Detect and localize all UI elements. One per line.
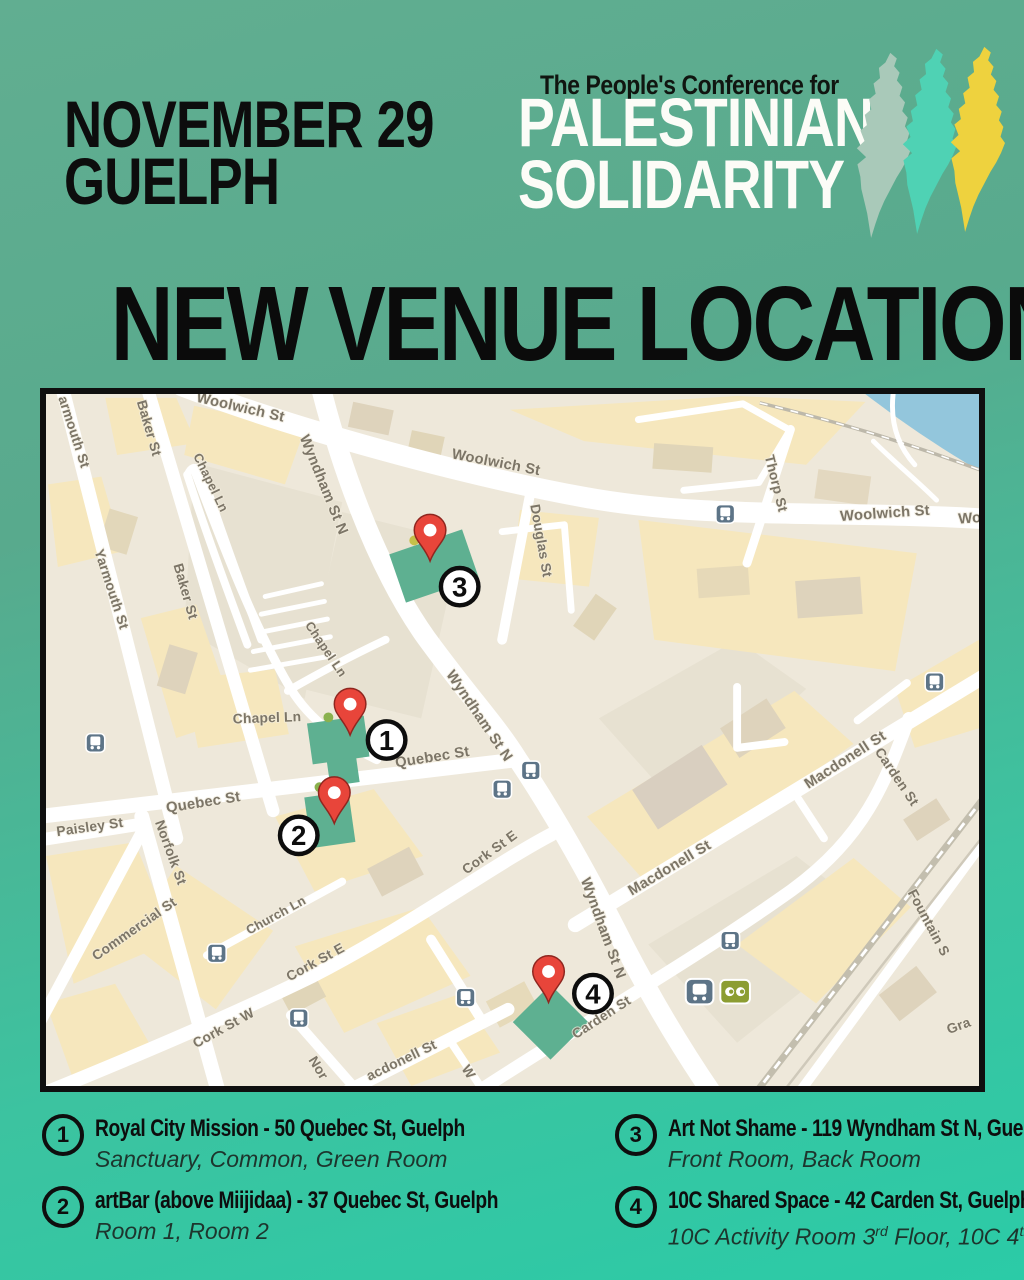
venue-highlight-1	[307, 716, 369, 765]
map-pin-badge-1: 1	[368, 721, 406, 758]
venue-item-2: 2 artBar (above Miijidaa) - 37 Quebec St…	[42, 1186, 599, 1252]
venue-rooms: 10C Activity Room 3rd Floor, 10C 4th Flo…	[668, 1217, 1024, 1252]
palestine-map-shapes-icon	[850, 46, 1020, 242]
bus-stop-icon	[925, 673, 944, 692]
venue-number-badge: 3	[615, 1114, 657, 1156]
palestine-shape-yellow	[943, 46, 1013, 235]
venue-item-1: 1 Royal City Mission - 50 Quebec St, Gue…	[42, 1114, 599, 1174]
bus-stop-icon	[207, 944, 226, 963]
venue-item-3: 3 Art Not Shame - 119 Wyndham St N, Guel…	[615, 1114, 1024, 1174]
bus-stop-icon	[493, 780, 512, 799]
svg-text:3: 3	[452, 572, 467, 603]
street-label: Wo	[958, 510, 979, 528]
bus-stop-icon	[521, 761, 540, 780]
venue-rooms: Room 1, Room 2	[95, 1217, 599, 1246]
venue-number-badge: 1	[42, 1114, 84, 1156]
svg-text:2: 2	[291, 820, 306, 851]
venue-title: Art Not Shame - 119 Wyndham St N, Guelph	[668, 1114, 1024, 1144]
venue-number-badge: 4	[615, 1186, 657, 1228]
map-pin-badge-2: 2	[280, 817, 318, 854]
venue-map: Woolwich StWoolwich StWoolwich StWoWyndh…	[40, 388, 985, 1092]
svg-text:1: 1	[379, 725, 394, 756]
svg-text:4: 4	[585, 978, 601, 1009]
venue-rooms: Front Room, Back Room	[668, 1145, 1024, 1174]
map-pin-badge-4: 4	[574, 975, 612, 1012]
headline: NEW VENUE LOCATIONS	[0, 264, 1024, 385]
bus-stop-icon	[86, 734, 105, 753]
bus-stop-icon	[289, 1009, 308, 1028]
venue-item-4: 4 10C Shared Space - 42 Carden St, Guelp…	[615, 1186, 1024, 1252]
venue-legend: 1 Royal City Mission - 50 Quebec St, Gue…	[42, 1114, 1000, 1252]
event-poster: NOVEMBER 29 GUELPH The People's Conferen…	[0, 0, 1024, 1280]
bus-stop-icon	[721, 931, 740, 950]
go-stop-icon	[720, 980, 750, 1004]
venue-rooms: Sanctuary, Common, Green Room	[95, 1145, 557, 1174]
venue-title: Royal City Mission - 50 Quebec St, Guelp…	[95, 1114, 465, 1144]
venue-title: 10C Shared Space - 42 Carden St, Guelph	[668, 1186, 1024, 1216]
bus-stop-icon	[716, 505, 735, 524]
venue-number-badge: 2	[42, 1186, 84, 1228]
venue-title: artBar (above Miijidaa) - 37 Quebec St, …	[95, 1186, 498, 1216]
poi-dot	[323, 712, 333, 722]
train-stop-icon	[686, 979, 714, 1005]
logo-title: PALESTINIAN SOLIDARITY	[518, 92, 873, 216]
event-date-location: NOVEMBER 29 GUELPH	[64, 96, 526, 210]
headline-text: NEW VENUE LOCATIONS	[111, 264, 1024, 385]
logo-title-line2: SOLIDARITY	[518, 146, 844, 223]
street-label: Chapel Ln	[232, 709, 301, 726]
map-canvas: Woolwich StWoolwich StWoolwich StWoWyndh…	[46, 394, 979, 1086]
map-pin-badge-3: 3	[441, 568, 479, 605]
bus-stop-icon	[456, 988, 475, 1007]
event-city: GUELPH	[64, 153, 279, 210]
